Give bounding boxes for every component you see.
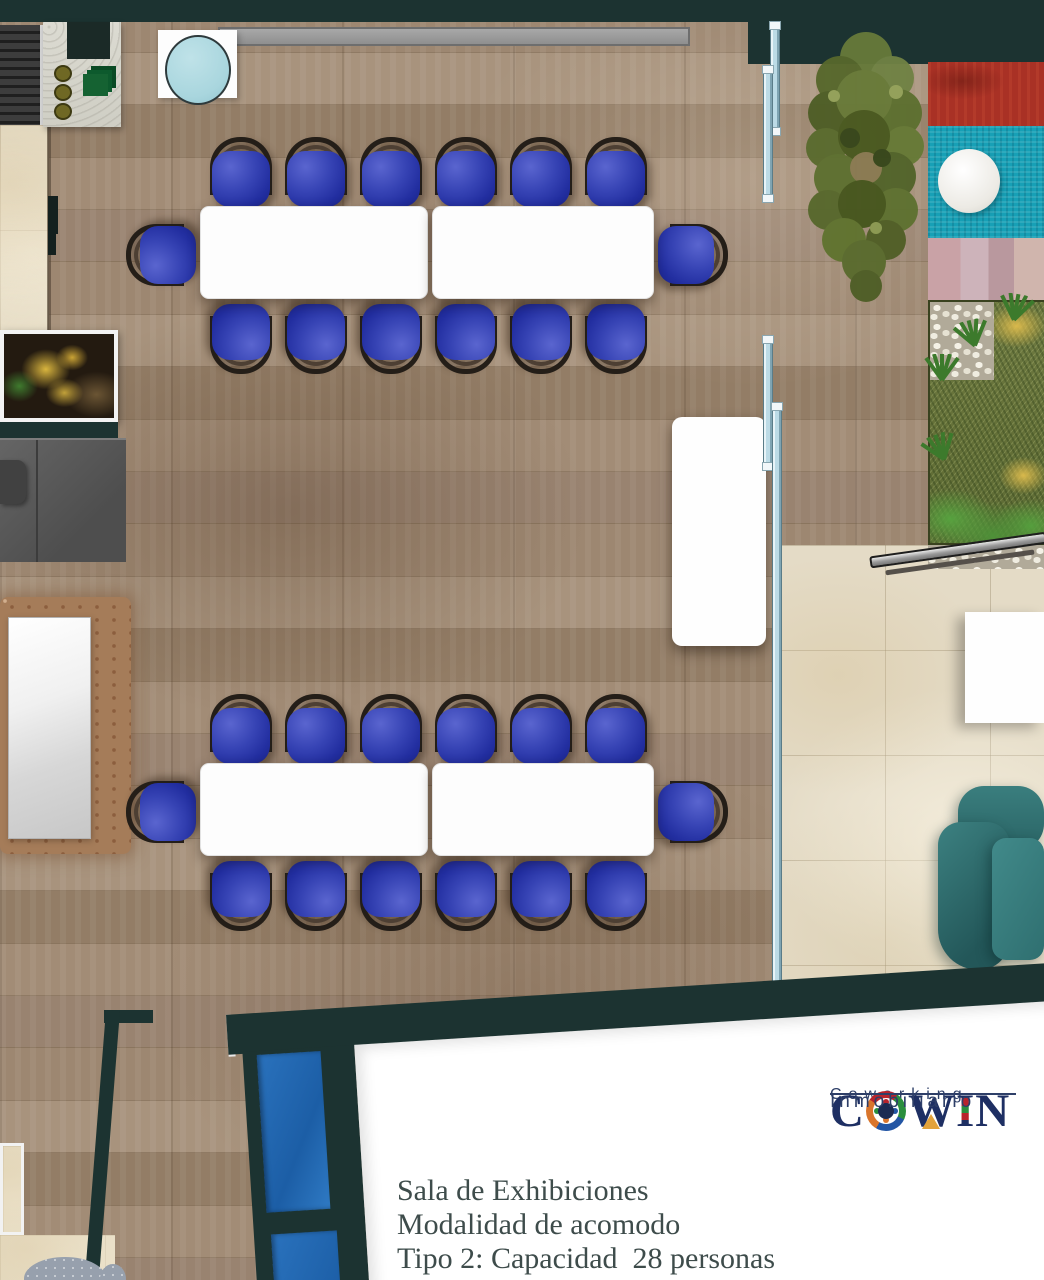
basin-table (158, 30, 237, 98)
chair-seat (512, 708, 570, 764)
refrigerator (0, 25, 43, 125)
credenza (0, 438, 126, 562)
conference-chair (506, 137, 576, 209)
chair-seat (437, 304, 495, 360)
chair-seat (212, 708, 270, 764)
conference-chair (281, 694, 351, 766)
conference-table (432, 763, 654, 856)
chair-seat (140, 226, 196, 284)
conference-chair (126, 220, 198, 290)
wall-counter (218, 27, 690, 46)
conference-chair (206, 302, 276, 374)
label-line-2: Modalidad de acomodo (397, 1208, 680, 1242)
chair-seat (140, 783, 196, 841)
door-panel (0, 1143, 24, 1235)
conference-chair (206, 694, 276, 766)
chair-seat (362, 708, 420, 764)
conference-chair (281, 859, 351, 931)
chair-seat (212, 861, 270, 917)
whiteboard (672, 417, 766, 646)
kitchen-counter (43, 22, 121, 127)
chair-seat (587, 151, 645, 207)
chair-seat (437, 708, 495, 764)
conference-chair (206, 137, 276, 209)
conference-chair (356, 302, 426, 374)
stove-burner (54, 103, 72, 120)
conference-chair (431, 694, 501, 766)
conference-chair (581, 694, 651, 766)
conference-chair (281, 302, 351, 374)
window-glass (257, 1051, 331, 1213)
chair-seat (212, 151, 270, 207)
conference-chair (281, 137, 351, 209)
door-jamb (48, 233, 56, 255)
chair-seat (437, 151, 495, 207)
conference-chair (356, 694, 426, 766)
chair-seat (587, 304, 645, 360)
chair-seat (658, 783, 714, 841)
chair-seat (658, 226, 714, 284)
conference-chair (656, 220, 728, 290)
window-glass (271, 1230, 349, 1280)
chair-seat (512, 304, 570, 360)
conference-chair (356, 137, 426, 209)
conference-chair (656, 777, 728, 847)
conference-chair (126, 777, 198, 847)
sofa-seat (992, 838, 1044, 960)
tree (800, 18, 936, 308)
chair-seat (512, 151, 570, 207)
basin-circle (165, 35, 231, 105)
conference-chair (506, 859, 576, 931)
mirror (8, 617, 91, 839)
chair-seat (437, 861, 495, 917)
chair-seat (287, 151, 345, 207)
conference-table (200, 763, 428, 856)
door-jamb (48, 196, 58, 234)
sofa (938, 786, 1044, 970)
chair-seat (587, 708, 645, 764)
logo-tagline-bottom: Inmobiliario (830, 1091, 975, 1113)
logo-w-triangle-icon (922, 1114, 940, 1129)
floor-plan: Sala de Exhibiciones Modalidad de acomod… (0, 0, 1044, 1280)
conference-table (432, 206, 654, 299)
chair-seat (287, 861, 345, 917)
conference-table (200, 206, 428, 299)
side-table (965, 612, 1044, 723)
conference-chair (506, 302, 576, 374)
chair-seat (587, 861, 645, 917)
label-line-3: Tipo 2: Capacidad 28 personas (397, 1242, 775, 1276)
napkin-stack (83, 74, 108, 96)
conference-chair (581, 137, 651, 209)
conference-chair (431, 137, 501, 209)
credenza-handle (0, 460, 26, 504)
glass-panel (763, 66, 773, 202)
chair-seat (287, 304, 345, 360)
planter-box (0, 330, 118, 422)
chair-seat (287, 708, 345, 764)
chair-seat (362, 304, 420, 360)
conference-chair (206, 859, 276, 931)
planter-base (0, 422, 118, 438)
glass-panel (772, 403, 782, 1010)
conference-chair (506, 694, 576, 766)
sink (67, 22, 110, 59)
stove-burner (54, 65, 72, 82)
conference-chair (431, 859, 501, 931)
conference-chair (431, 302, 501, 374)
chair-seat (512, 861, 570, 917)
chair-seat (362, 151, 420, 207)
stove-burner (54, 84, 72, 101)
conference-chair (581, 302, 651, 374)
room-label: Sala de Exhibiciones Modalidad de acomod… (397, 1106, 827, 1276)
conference-chair (356, 859, 426, 931)
chair-seat (212, 304, 270, 360)
conference-chair (581, 859, 651, 931)
credenza-seam (36, 440, 38, 562)
chair-seat (362, 861, 420, 917)
label-line-1: Sala de Exhibiciones (397, 1174, 649, 1208)
